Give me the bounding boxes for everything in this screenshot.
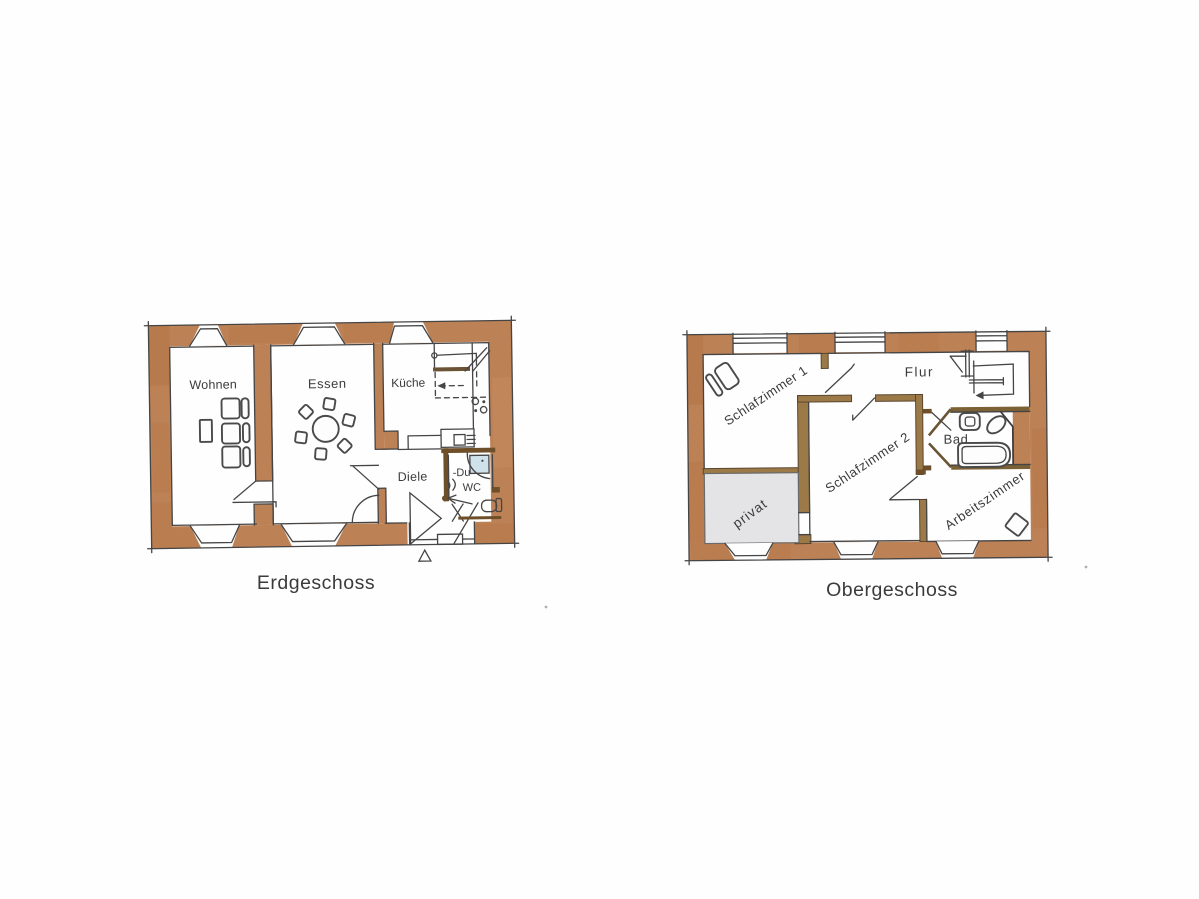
svg-text:Küche: Küche (391, 376, 426, 391)
svg-text:Essen: Essen (308, 376, 347, 392)
svg-text:Wohnen: Wohnen (189, 377, 237, 392)
svg-text:Diele: Diele (398, 470, 428, 484)
svg-text:Erdgeschoss: Erdgeschoss (257, 572, 375, 594)
svg-text:-Du: -Du (453, 467, 471, 479)
svg-text:Obergeschoss: Obergeschoss (826, 579, 958, 601)
svg-text:Flur: Flur (905, 364, 934, 379)
svg-text:WC: WC (463, 482, 482, 494)
